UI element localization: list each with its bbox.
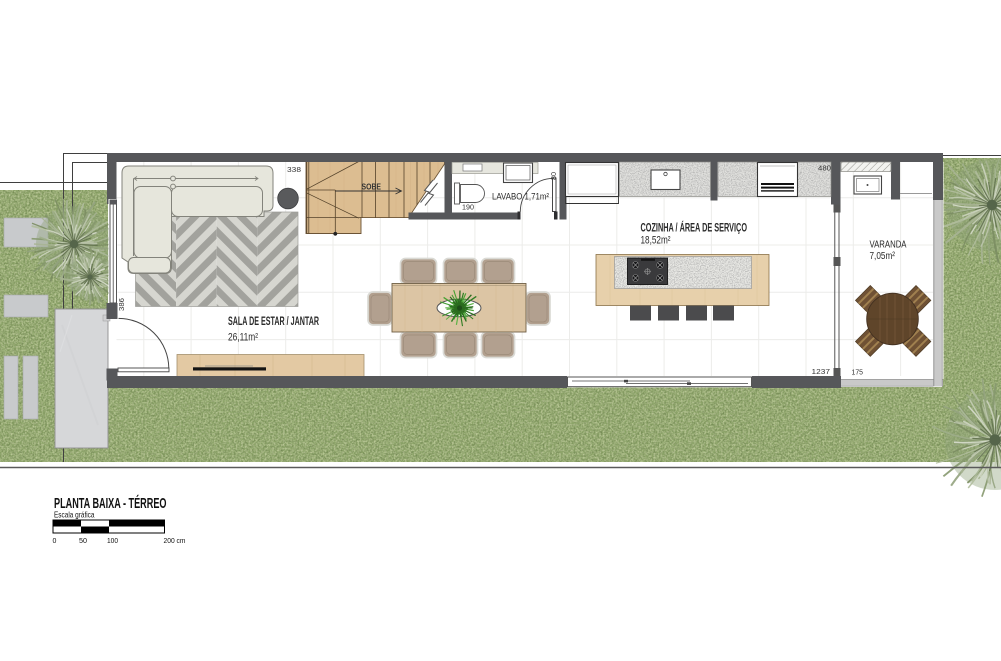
- svg-text:338: 338: [287, 165, 301, 174]
- svg-text:SALA DE ESTAR / JANTAR: SALA DE ESTAR / JANTAR: [228, 316, 319, 328]
- svg-text:386: 386: [119, 298, 126, 311]
- svg-text:200 cm: 200 cm: [164, 538, 186, 545]
- svg-text:7,05m²: 7,05m²: [870, 251, 896, 262]
- svg-text:480: 480: [818, 166, 831, 173]
- svg-text:80: 80: [551, 172, 558, 180]
- svg-text:26,11m²: 26,11m²: [228, 332, 258, 344]
- svg-text:50: 50: [79, 538, 87, 545]
- svg-text:190: 190: [462, 205, 474, 212]
- svg-text:COZINHA / ÁREA DE SERVIÇO: COZINHA / ÁREA DE SERVIÇO: [641, 222, 748, 235]
- svg-text:SOBE: SOBE: [362, 182, 382, 191]
- svg-text:LAVABO 1,71m²: LAVABO 1,71m²: [492, 192, 549, 203]
- svg-text:175: 175: [852, 370, 864, 377]
- svg-text:18,52m²: 18,52m²: [641, 235, 671, 247]
- svg-text:VARANDA: VARANDA: [870, 240, 907, 251]
- svg-text:1237: 1237: [812, 367, 831, 376]
- svg-text:Escala gráfica: Escala gráfica: [54, 510, 95, 520]
- svg-text:100: 100: [107, 538, 118, 545]
- svg-text:0: 0: [53, 538, 57, 545]
